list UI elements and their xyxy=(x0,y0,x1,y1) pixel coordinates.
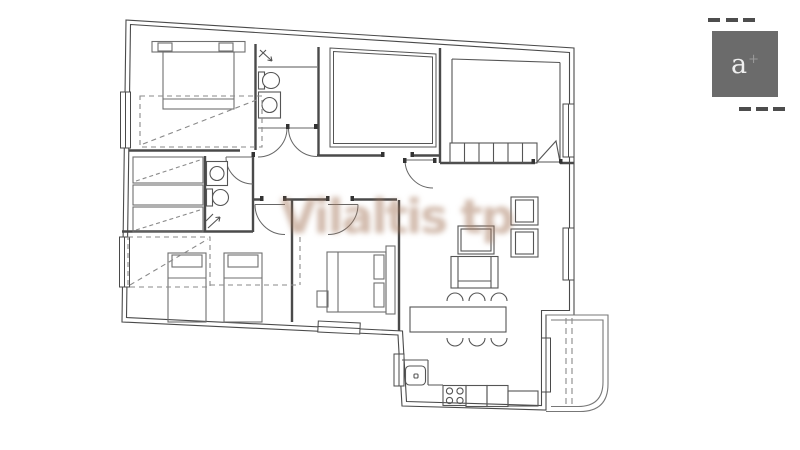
interior-walls xyxy=(122,44,574,331)
window-icon xyxy=(318,321,360,334)
chair-icon xyxy=(447,293,507,346)
balcony xyxy=(546,315,608,412)
window-icon xyxy=(394,354,404,386)
screenshot-root: { "canvas": { "background": "#ffffff" },… xyxy=(0,0,800,450)
armchair-icon xyxy=(511,197,538,225)
cabinet-icon xyxy=(487,386,508,407)
window-icon xyxy=(121,92,131,148)
brand-logo-superscript: + xyxy=(748,52,759,67)
brand-dash xyxy=(739,107,751,111)
bathroom-middle xyxy=(206,162,229,229)
bed-icon xyxy=(152,42,245,110)
patio-room xyxy=(330,48,436,147)
brand-dash xyxy=(773,107,785,111)
floor-plan-svg xyxy=(0,0,800,450)
living-room xyxy=(451,197,538,288)
brand-dash xyxy=(743,18,755,22)
bathroom-top xyxy=(258,50,317,118)
double-bed-icon xyxy=(327,246,395,314)
bedroom-bottom-center xyxy=(317,246,395,314)
dining-table-icon xyxy=(410,307,506,332)
wardrobe-dashed-icon xyxy=(140,96,262,147)
window-icon xyxy=(542,338,551,392)
door-arc-icon xyxy=(405,160,433,188)
brand-logo: a+ xyxy=(712,31,778,97)
sink-icon xyxy=(207,162,228,186)
window-icon xyxy=(563,228,574,280)
door-arc-icon xyxy=(328,205,358,235)
bedroom-bottom-left xyxy=(128,237,300,322)
counter-icon xyxy=(508,391,538,406)
closet-column xyxy=(133,157,203,232)
shower-icon xyxy=(206,214,220,228)
door-arc-icon xyxy=(226,157,253,184)
sofa-icon xyxy=(451,257,498,289)
kitchen xyxy=(402,360,538,407)
armchair-icon xyxy=(511,229,538,257)
toilet-icon xyxy=(259,72,280,89)
exterior-walls xyxy=(122,20,574,410)
brand-logo-letter: a+ xyxy=(731,51,759,78)
door-leaf-icon xyxy=(537,141,560,162)
dining-area xyxy=(410,293,507,346)
single-bed-icon xyxy=(224,253,262,322)
windows xyxy=(120,92,575,392)
window-icon xyxy=(563,104,574,157)
brand-dash xyxy=(726,18,738,22)
toilet-icon xyxy=(207,189,229,206)
door-arc-icon xyxy=(258,128,287,157)
nightstand-icon xyxy=(317,291,328,307)
floor-plan-image xyxy=(0,0,800,450)
bedroom-top-left xyxy=(140,42,262,148)
door-arc-icon xyxy=(289,128,318,157)
shower-icon xyxy=(259,50,272,61)
wardrobe-dashed-icon xyxy=(128,237,300,287)
brand-dash xyxy=(708,18,720,22)
door-arc-icon xyxy=(255,205,285,235)
kitchen-sink-icon xyxy=(406,366,426,385)
top-right-room xyxy=(450,59,560,163)
brand-dash xyxy=(756,107,768,111)
side-table-icon xyxy=(458,226,494,254)
